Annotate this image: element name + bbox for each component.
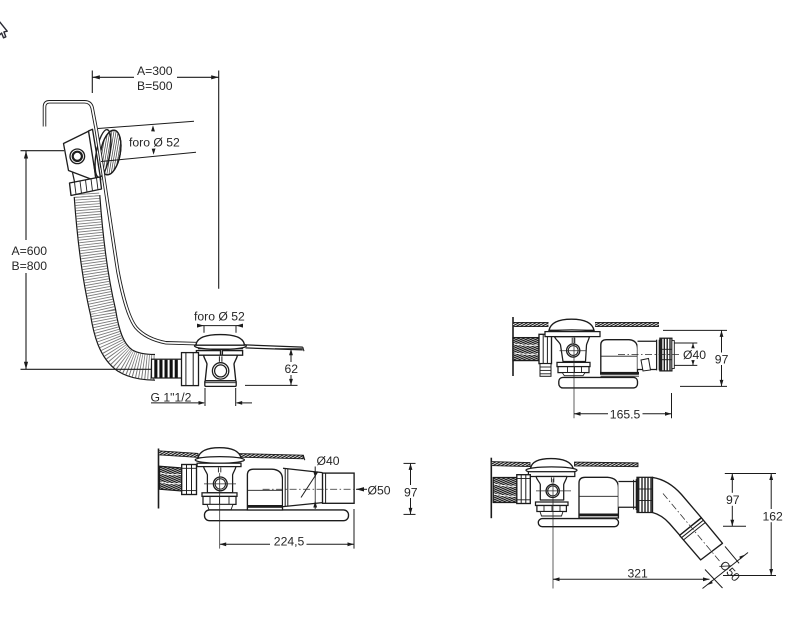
svg-text:224,5: 224,5 <box>274 535 305 549</box>
svg-text:B=500: B=500 <box>137 79 173 93</box>
svg-text:Ø40: Ø40 <box>317 454 340 468</box>
svg-text:97: 97 <box>404 485 418 499</box>
svg-text:97: 97 <box>715 353 729 367</box>
svg-text:Ø40: Ø40 <box>683 348 706 362</box>
svg-text:321: 321 <box>628 566 649 580</box>
svg-text:B=800: B=800 <box>12 259 48 273</box>
svg-text:foro Ø 52: foro Ø 52 <box>194 310 245 324</box>
svg-text:165.5: 165.5 <box>610 408 641 422</box>
svg-text:A=600: A=600 <box>12 244 48 258</box>
svg-text:foro Ø 52: foro Ø 52 <box>129 136 180 150</box>
svg-text:62: 62 <box>285 362 299 376</box>
svg-text:162: 162 <box>763 510 784 524</box>
svg-text:Ø50: Ø50 <box>368 484 391 498</box>
svg-text:97: 97 <box>726 493 740 507</box>
svg-text:A=300: A=300 <box>137 64 173 78</box>
